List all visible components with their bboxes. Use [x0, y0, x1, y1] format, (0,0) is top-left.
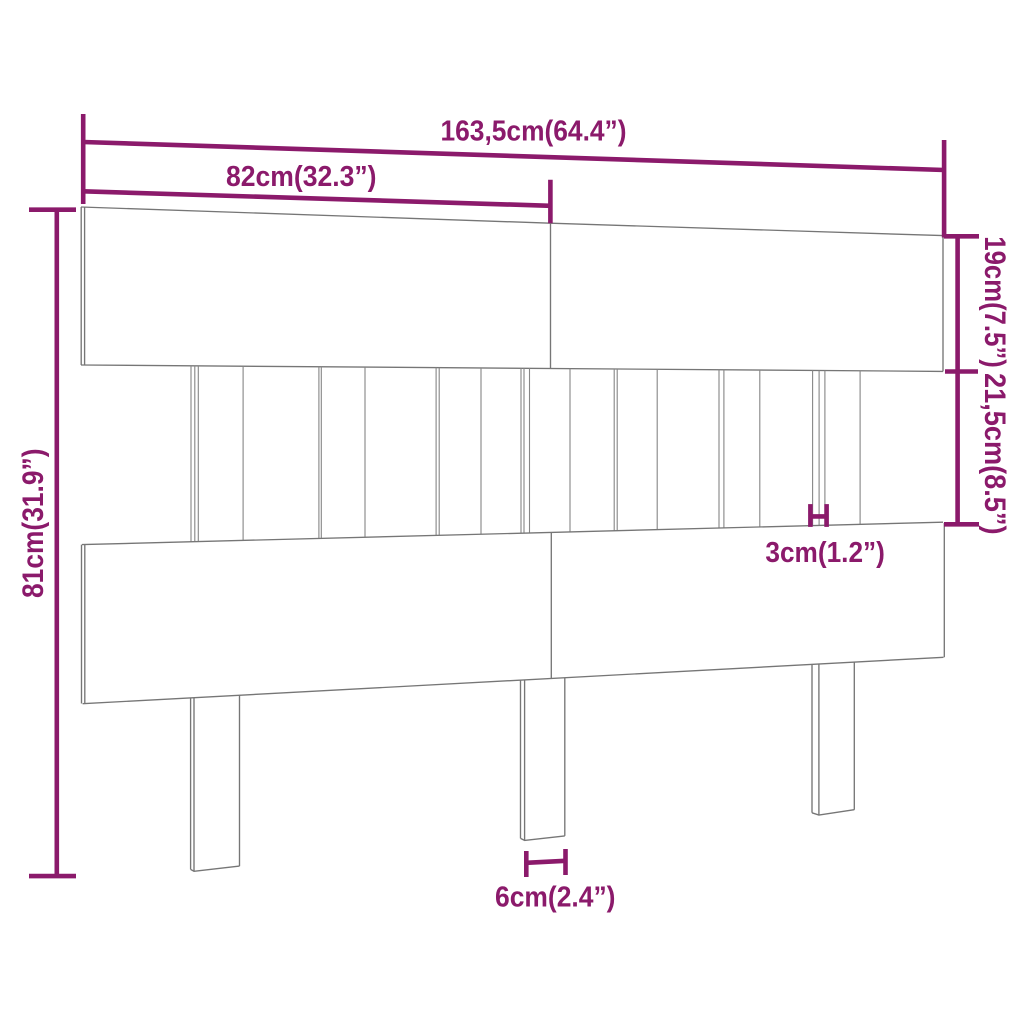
- svg-text:163,5cm(64.4”): 163,5cm(64.4”): [441, 116, 627, 148]
- svg-text:81cm(31.9”): 81cm(31.9”): [17, 449, 50, 599]
- svg-text:6cm(2.4”): 6cm(2.4”): [495, 882, 616, 914]
- svg-text:82cm(32.3”): 82cm(32.3”): [226, 161, 377, 193]
- svg-text:19cm(7.5”): 19cm(7.5”): [978, 236, 1011, 367]
- svg-text:21,5cm(8.5”): 21,5cm(8.5”): [978, 373, 1011, 535]
- svg-text:3cm(1.2”): 3cm(1.2”): [765, 537, 885, 569]
